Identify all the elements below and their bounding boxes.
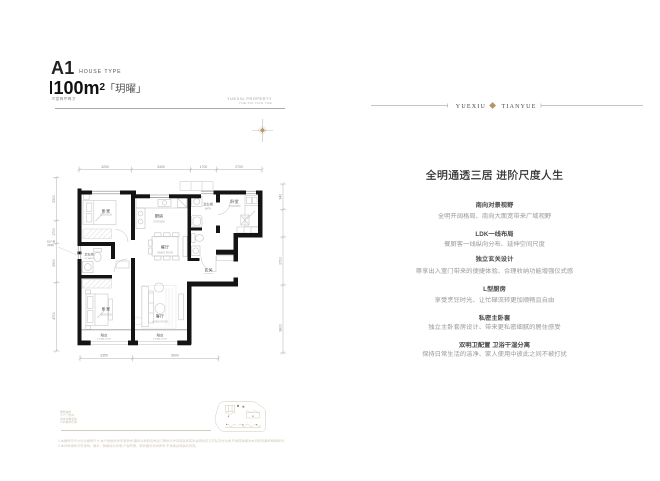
svg-text:3200X3300: 3200X3300: [100, 214, 112, 216]
svg-text:5.8 BALCONY: 5.8 BALCONY: [153, 338, 168, 341]
svg-text:玄关: 玄关: [204, 268, 212, 273]
svg-text:2700X2850: 2700X2850: [229, 206, 241, 208]
svg-text:1700: 1700: [52, 228, 56, 236]
svg-text:4.6 BALCONY: 4.6 BALCONY: [97, 338, 112, 341]
svg-text:BATH: BATH: [205, 208, 211, 211]
svg-text:卧室: 卧室: [102, 208, 110, 213]
svg-text:2700: 2700: [235, 165, 243, 169]
svg-text:3350: 3350: [100, 354, 108, 358]
svg-text:YUEXIU: YUEXIU: [456, 104, 486, 110]
svg-text:客厅: 客厅: [156, 314, 164, 319]
svg-text:4700: 4700: [52, 312, 56, 320]
svg-text:餐厅: 餐厅: [161, 245, 169, 250]
svg-text:厨房: 厨房: [155, 214, 163, 219]
svg-text:1700: 1700: [200, 165, 208, 169]
svg-text:(镜像): (镜像): [47, 243, 54, 247]
svg-text:卧室: 卧室: [230, 199, 238, 204]
svg-text:2700: 2700: [279, 257, 283, 265]
svg-text:LIVING ROOM: LIVING ROOM: [152, 322, 167, 324]
svg-text:940: 940: [279, 194, 283, 200]
svg-text:3400: 3400: [157, 165, 165, 169]
svg-text:3300: 3300: [52, 195, 56, 203]
svg-text:2700X1800: 2700X1800: [153, 222, 165, 224]
svg-text:阳台: 阳台: [101, 333, 108, 337]
svg-text:3800: 3800: [279, 324, 283, 332]
svg-text:4.2 BATH: 4.2 BATH: [84, 257, 94, 260]
svg-text:TIANYUE: TIANYUE: [502, 104, 537, 110]
svg-text:卫生间: 卫生间: [84, 253, 94, 257]
svg-text:阳台: 阳台: [157, 333, 164, 337]
svg-text:5600: 5600: [171, 354, 179, 358]
svg-text:3300X3700: 3300X3700: [100, 315, 112, 317]
svg-text:卫生间: 卫生间: [203, 203, 214, 207]
svg-text:3200: 3200: [101, 165, 109, 169]
svg-text:DINING ROOM: DINING ROOM: [157, 253, 173, 255]
svg-text:卧室: 卧室: [102, 307, 110, 312]
svg-text:2900: 2900: [52, 259, 56, 267]
